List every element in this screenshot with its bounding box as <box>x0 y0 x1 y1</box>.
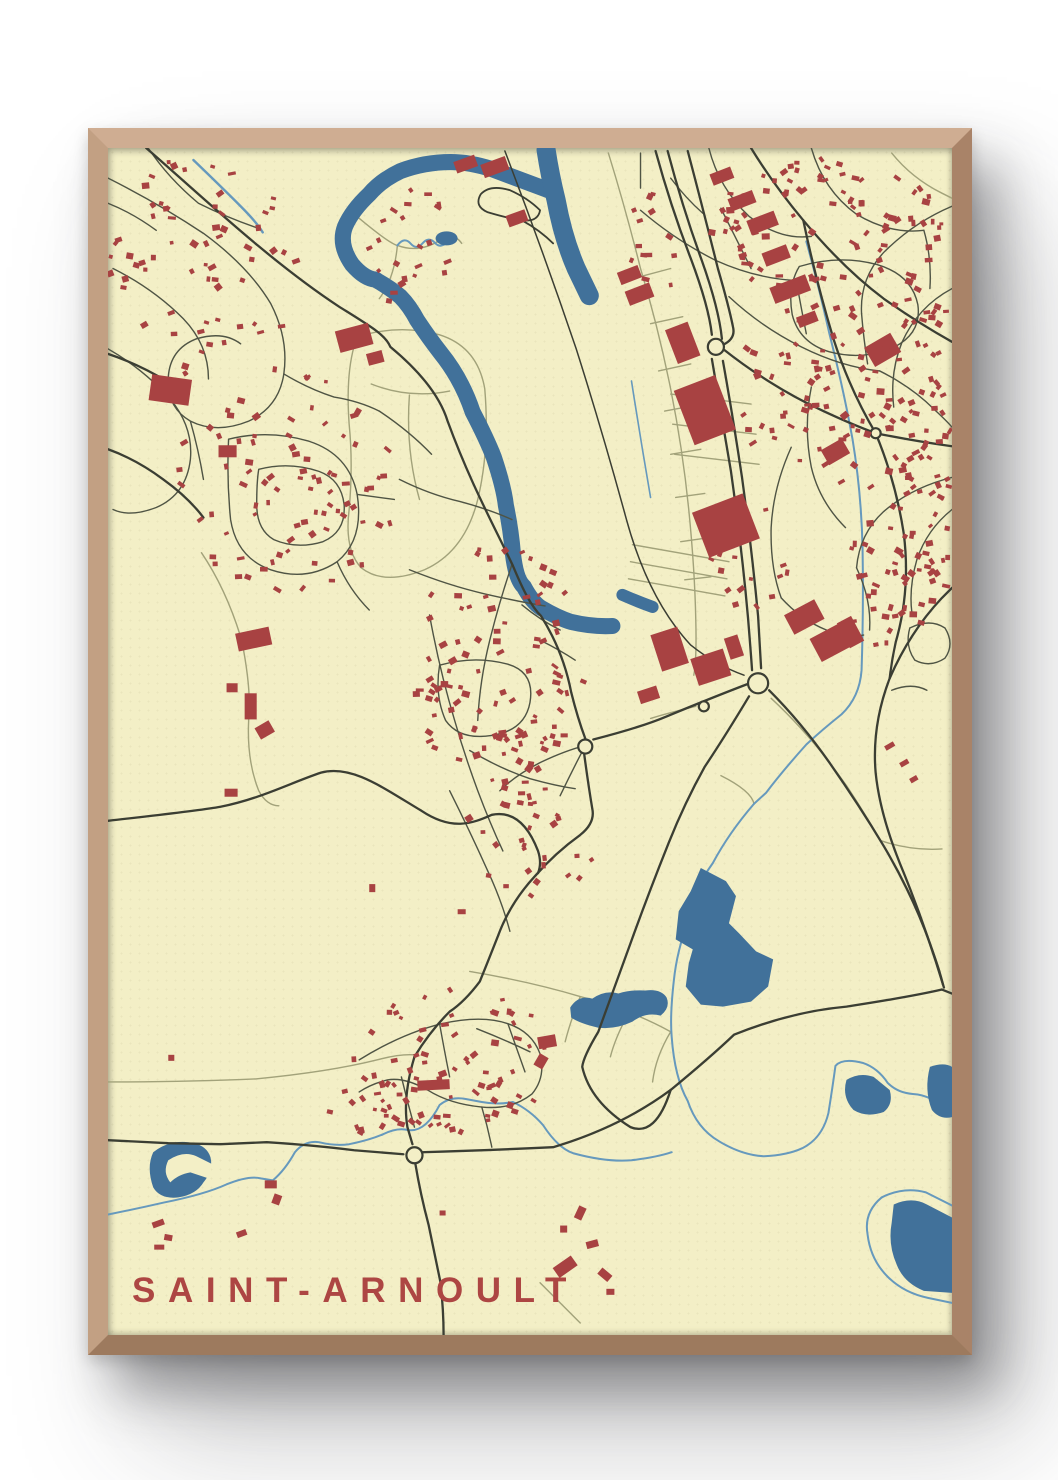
page-background: { "poster": { "title": "SAINT-ARNOULT", … <box>0 0 1058 1480</box>
city-map <box>108 148 952 1335</box>
major-roads <box>108 148 952 1335</box>
streams <box>108 160 952 1303</box>
poster-title: SAINT-ARNOULT <box>132 1271 579 1311</box>
lakes <box>150 868 952 1293</box>
roundabouts <box>406 339 880 1163</box>
poster-paper: SAINT-ARNOULT <box>108 148 952 1335</box>
poster-frame: SAINT-ARNOULT <box>88 128 972 1355</box>
pond <box>436 231 458 245</box>
large-buildings <box>149 155 919 1295</box>
river-bands <box>343 150 653 626</box>
